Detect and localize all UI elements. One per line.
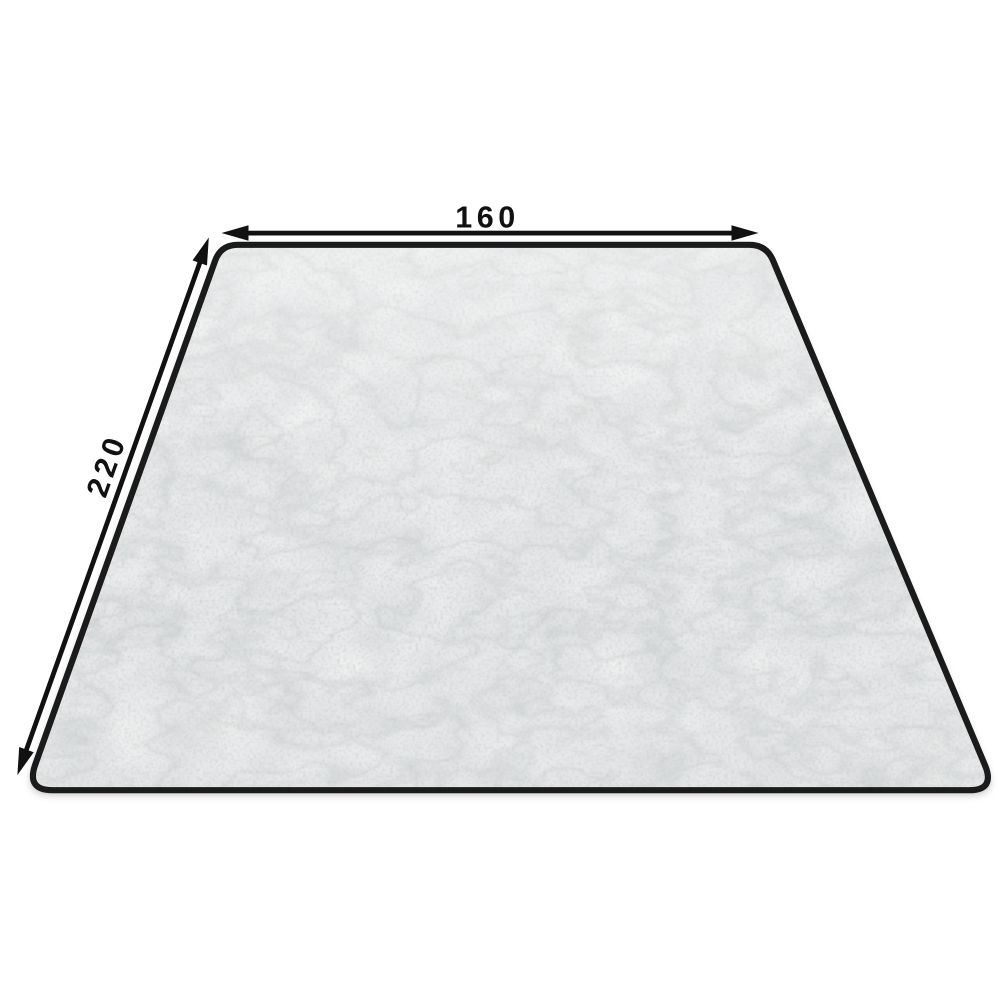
svg-text:160: 160 <box>455 201 519 235</box>
